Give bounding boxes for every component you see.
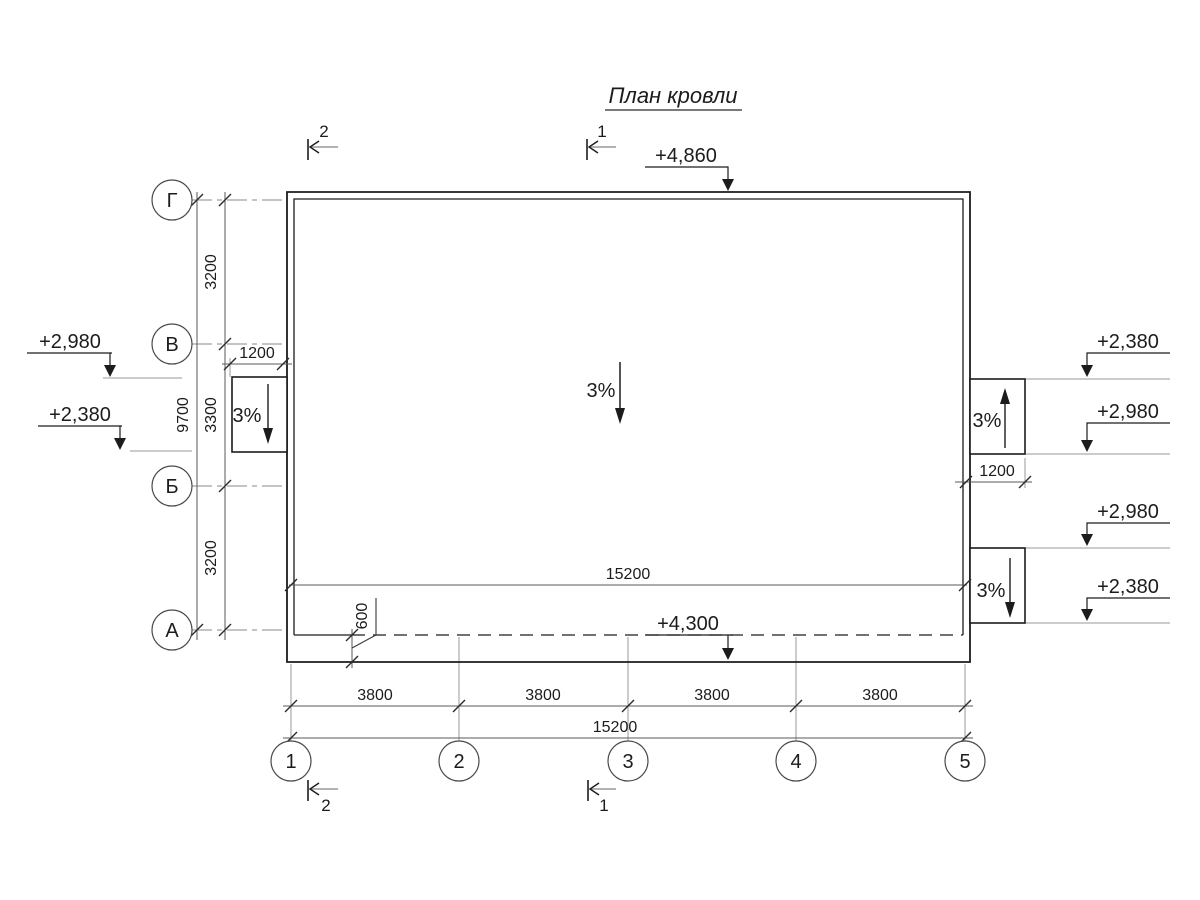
axis-bubble-col-5: 5 bbox=[945, 741, 985, 781]
dim-rows-total: 9700 bbox=[175, 397, 192, 433]
elevation-left-lower-label: +2,380 bbox=[49, 404, 111, 426]
section-mark-1-top: 1 bbox=[587, 122, 616, 160]
elevation-right-1-leader bbox=[1087, 353, 1170, 365]
axis-col-label-4: 4 bbox=[790, 751, 801, 773]
left-canopy-slope-label: 3% bbox=[233, 405, 262, 427]
elevation-right-3-label: +2,980 bbox=[1097, 501, 1159, 523]
axis-col-label-2: 2 bbox=[453, 751, 464, 773]
elevation-left-lower: +2,380 bbox=[38, 404, 126, 450]
building-outer-outline bbox=[287, 192, 970, 662]
dim-inner-width: 15200 bbox=[606, 566, 651, 583]
elevation-left-upper: +2,980 bbox=[27, 331, 116, 377]
elevation-eave-arrow-icon bbox=[722, 648, 734, 660]
axis-bubble-row-a: А bbox=[152, 610, 192, 650]
elevation-eave-label: +4,300 bbox=[657, 613, 719, 635]
axis-bubble-col-4: 4 bbox=[776, 741, 816, 781]
section-1-top-label: 1 bbox=[597, 122, 606, 141]
dim-row-spacing-3: 3200 bbox=[203, 540, 220, 576]
elevation-right-2: +2,980 bbox=[1081, 401, 1170, 452]
elevation-right-2-arrow-icon bbox=[1081, 440, 1093, 452]
elevation-right-3: +2,980 bbox=[1081, 501, 1170, 546]
right-lower-slope-label: 3% bbox=[977, 580, 1006, 602]
axis-bubble-row-g: Г bbox=[152, 180, 192, 220]
section-mark-2-top: 2 bbox=[308, 122, 338, 160]
axis-bubble-row-b: Б bbox=[152, 466, 192, 506]
section-2-top-label: 2 bbox=[319, 122, 328, 141]
elevation-left-upper-label: +2,980 bbox=[39, 331, 101, 353]
elevation-right-4-arrow-icon bbox=[1081, 609, 1093, 621]
axis-bubble-row-v: В bbox=[152, 324, 192, 364]
elevation-left-lower-leader bbox=[38, 426, 122, 438]
elevation-eave: +4,300 bbox=[645, 613, 734, 660]
main-roof-slope: 3% bbox=[587, 362, 625, 424]
dim-left-canopy-width: 1200 bbox=[239, 345, 275, 362]
elevation-right-4-label: +2,380 bbox=[1097, 576, 1159, 598]
main-slope-label: 3% bbox=[587, 380, 616, 402]
elevation-top: +4,860 bbox=[645, 145, 734, 191]
elevation-left-upper-leader bbox=[27, 353, 112, 366]
drawing-sheet: План кровли 3% 3% 3% 3% 3200 3300 32 bbox=[0, 0, 1200, 900]
axis-bubble-col-3: 3 bbox=[608, 741, 648, 781]
axis-row-label-1: Г bbox=[167, 190, 178, 212]
main-slope-arrowhead-icon bbox=[615, 408, 625, 424]
elevation-right-2-leader bbox=[1087, 423, 1170, 440]
elevation-left-lower-arrow-icon bbox=[114, 438, 126, 450]
elevation-right-4: +2,380 bbox=[1081, 576, 1170, 621]
dim-right-canopy-width: 1200 bbox=[979, 463, 1015, 480]
elevation-right-4-leader bbox=[1087, 598, 1170, 609]
extension-lines bbox=[230, 358, 1025, 741]
axis-row-label-2: В bbox=[165, 334, 178, 356]
right-upper-slope-label: 3% bbox=[973, 410, 1002, 432]
drawing-title: План кровли bbox=[608, 83, 737, 108]
elevation-eave-leader bbox=[645, 635, 733, 649]
elevation-right-2-label: +2,980 bbox=[1097, 401, 1159, 423]
elevation-right-3-arrow-icon bbox=[1081, 534, 1093, 546]
dimension-lines bbox=[197, 192, 1032, 738]
elevation-top-label: +4,860 bbox=[655, 145, 717, 167]
axis-col-label-5: 5 bbox=[959, 751, 970, 773]
dim-col-spacing-2: 3800 bbox=[525, 687, 561, 704]
dim-col-spacing-3: 3800 bbox=[694, 687, 730, 704]
axis-bubble-col-2: 2 bbox=[439, 741, 479, 781]
axis-col-label-3: 3 bbox=[622, 751, 633, 773]
axis-row-label-3: Б bbox=[165, 476, 178, 498]
section-mark-2-bottom: 2 bbox=[308, 780, 338, 815]
dim-row-spacing-2: 3300 bbox=[203, 397, 220, 433]
dim-col-spacing-1: 3800 bbox=[357, 687, 393, 704]
elevation-left-upper-arrow-icon bbox=[104, 365, 116, 377]
dim-row-spacing-1: 3200 bbox=[203, 254, 220, 290]
elevation-right-1: +2,380 bbox=[1081, 331, 1170, 377]
roof-plan-drawing: План кровли 3% 3% 3% 3% 3200 3300 32 bbox=[0, 0, 1200, 900]
elevation-top-arrow-icon bbox=[722, 179, 734, 191]
axis-bubble-col-1: 1 bbox=[271, 741, 311, 781]
axis-row-label-4: А bbox=[165, 620, 179, 642]
section-1-bottom-label: 1 bbox=[599, 796, 608, 815]
section-2-bottom-label: 2 bbox=[321, 796, 330, 815]
dim-eave-overhang: 600 bbox=[354, 603, 371, 630]
elevation-top-leader bbox=[645, 167, 728, 180]
axis-col-label-1: 1 bbox=[285, 751, 296, 773]
elevation-right-1-arrow-icon bbox=[1081, 365, 1093, 377]
section-mark-1-bottom: 1 bbox=[588, 780, 616, 815]
dim-col-spacing-4: 3800 bbox=[862, 687, 898, 704]
elevation-right-1-label: +2,380 bbox=[1097, 331, 1159, 353]
dim-cols-total: 15200 bbox=[593, 719, 638, 736]
elevation-right-3-leader bbox=[1087, 523, 1170, 534]
